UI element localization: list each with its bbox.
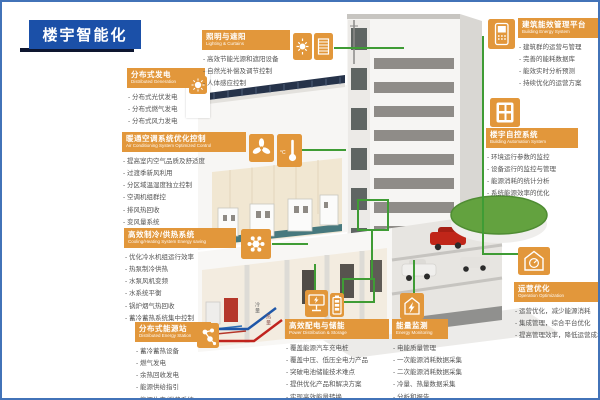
section-cooling-heating: 高效制冷/供热系统 Cooling/Heating System Energy …	[124, 228, 236, 325]
section-header: 运营优化 Operation Optimization	[514, 282, 600, 302]
section-header: 暖通空调系统优化控制 Air Conditioning System Optim…	[122, 132, 246, 152]
section-items: 电能质量管理 一次能源消耗数据采集 二次能源消耗数据采集 冷量、热量数据采集 分…	[393, 343, 448, 400]
section-title: 高效制冷/供热系统	[128, 230, 232, 239]
list-item: 二次能源消耗数据采集	[393, 367, 448, 379]
list-item: 一次能源消耗数据采集	[393, 355, 448, 367]
page-title: 楼宇智能化	[29, 20, 141, 49]
section-title: 高效配电与储能	[289, 321, 385, 330]
battery-icon	[330, 293, 344, 317]
list-item: 提高室内空气品质及舒适度	[123, 156, 246, 168]
hot-pipe-label: 热量	[265, 314, 270, 326]
list-item: 运营优化，减少能源消耗	[515, 306, 600, 318]
section-title: 运营优化	[518, 284, 596, 293]
list-item: 锅炉烟气热回收	[125, 301, 236, 313]
list-item: 能源消耗的统计分析	[487, 176, 578, 188]
list-item: 提高管理效率，降低运营成本	[515, 330, 600, 342]
section-items: 分布式光伏发电 分布式燃气发电 分布式风力发电	[128, 92, 205, 129]
section-items: 环境运行参数的监控 设备运行的监控与管理 能源消耗的统计分析 系统能源效率的优化	[487, 152, 578, 201]
section-header: 高效制冷/供热系统 Cooling/Heating System Energy …	[124, 228, 236, 248]
section-subtitle: Operation Optimization	[518, 293, 596, 299]
list-item: 高效节能光源和遮阳设备	[203, 54, 290, 66]
list-item: 提供优化产品和解决方案	[286, 379, 389, 391]
list-item: 覆盖能源汽车充电桩	[286, 343, 389, 355]
list-item: 能源生产/消费系统	[136, 395, 211, 400]
section-subtitle: Building Automation System	[490, 139, 574, 145]
list-item: 过渡季新风利用	[123, 168, 246, 180]
list-item: 自然光补偿及调节控制	[203, 66, 290, 78]
slide-canvas: 冷量 热量 楼宇智能化 分布式发电 Distributed Generation…	[0, 0, 600, 400]
section-items: 提高室内空气品质及舒适度 过渡季新风利用 分区域温湿度独立控制 空调机组群控 排…	[123, 156, 246, 230]
list-item: 集成管理，综合平台优化	[515, 318, 600, 330]
section-subtitle: Cooling/Heating System Energy saving	[128, 239, 232, 245]
cold-pipe-label: 冷量	[254, 302, 259, 314]
list-item: 能源供给指引	[136, 382, 211, 394]
section-operation-optimization: 运营优化 Operation Optimization 运营优化，减少能源消耗 …	[514, 282, 600, 342]
sun-icon	[293, 33, 312, 60]
section-title: 能量监测	[396, 321, 444, 330]
tablet-icon	[488, 19, 515, 49]
list-item: 优化冷水机组运行效率	[125, 252, 236, 264]
section-subtitle: Power Distribution & Storage	[289, 330, 385, 336]
section-items: 建筑群的运营与管理 完善的能耗数据库 能效实时分析预测 持续优化的运营方案	[519, 42, 600, 91]
section-lighting: 照明与遮阳 Lighting & Curtains 高效节能光源和遮阳设备 自然…	[202, 30, 290, 90]
list-item: 完善的能耗数据库	[519, 54, 600, 66]
list-item: 水系统平衡	[125, 288, 236, 300]
list-item: 设备运行的监控与管理	[487, 164, 578, 176]
molecule-icon	[197, 323, 219, 348]
list-item: 分区域温湿度独立控制	[123, 180, 246, 192]
section-energy-monitoring: 能量监测 Energy Monitoring 电能质量管理 一次能源消耗数据采集…	[392, 319, 448, 400]
list-item: 余热回收发电	[136, 370, 211, 382]
list-item: 能效实时分析预测	[519, 66, 600, 78]
section-title: 楼宇自控系统	[490, 130, 574, 139]
list-item: 分布式燃气发电	[128, 104, 205, 116]
section-title: 照明与遮阳	[206, 32, 286, 41]
list-item: 系统能源效率的优化	[487, 188, 578, 200]
list-item: 突破电池储能技术难点	[286, 367, 389, 379]
section-subtitle: Lighting & Curtains	[206, 41, 286, 47]
list-item: 环境运行参数的监控	[487, 152, 578, 164]
list-item: 分布式风力发电	[128, 116, 205, 128]
section-title: 暖通空调系统优化控制	[126, 134, 242, 143]
section-title: 建筑能效管理平台	[522, 20, 596, 29]
list-item: 冷量、热量数据采集	[393, 379, 448, 391]
section-header: 楼宇自控系统 Building Automation System	[486, 128, 578, 148]
house-gauge-icon	[518, 247, 550, 275]
section-building-automation: 楼宇自控系统 Building Automation System 环境运行参数…	[486, 128, 578, 201]
svg-text:°C: °C	[280, 150, 286, 156]
section-subtitle: Air Conditioning System Optimized Contro…	[126, 143, 242, 149]
green-roof-garden	[451, 196, 547, 243]
list-item: 持续优化的运营方案	[519, 78, 600, 90]
list-item: 实现高效能量转换	[286, 392, 389, 400]
list-item: 水泵风机变频	[125, 276, 236, 288]
list-item: 电能质量管理	[393, 343, 448, 355]
list-item: 燃气发电	[136, 358, 211, 370]
section-hvac: 暖通空调系统优化控制 Air Conditioning System Optim…	[122, 132, 246, 229]
list-item: 分析和报告	[393, 392, 448, 400]
list-item: 空调机组群控	[123, 192, 246, 204]
section-header: 能量监测 Energy Monitoring	[392, 319, 448, 339]
section-items: 高效节能光源和遮阳设备 自然光补偿及调节控制 人体感应控制	[203, 54, 290, 91]
section-header: 照明与遮阳 Lighting & Curtains	[202, 30, 290, 50]
list-item: 排风热回收	[123, 205, 246, 217]
gear-icon	[241, 229, 271, 259]
section-items: 优化冷水机组运行效率 热泵制冷供热 水泵风机变频 水系统平衡 锅炉烟气热回收 蓄…	[125, 252, 236, 326]
list-item: 建筑群的运营与管理	[519, 42, 600, 54]
section-items: 运营优化，减少能源消耗 集成管理，综合平台优化 提高管理效率，降低运营成本	[515, 306, 600, 343]
section-power-storage: 高效配电与储能 Power Distribution & Storage 覆盖能…	[285, 319, 389, 400]
section-items: 覆盖能源汽车充电桩 覆盖中压、低压全电力产品 突破电池储能技术难点 提供优化产品…	[286, 343, 389, 400]
section-energy-platform: 建筑能效管理平台 Building Energy System 建筑群的运营与管…	[518, 18, 600, 91]
list-item: 人体感应控制	[203, 78, 290, 90]
ev-charger-icon	[305, 290, 328, 317]
section-subtitle: Energy Monitoring	[396, 330, 444, 336]
thermometer-icon: °C	[277, 134, 302, 167]
section-items: 蓄冷蓄热设备 燃气发电 余热回收发电 能源供给指引 能源生产/消费系统	[136, 346, 211, 400]
section-header: 建筑能效管理平台 Building Energy System	[518, 18, 600, 38]
list-item: 覆盖中压、低压全电力产品	[286, 355, 389, 367]
fan-icon	[249, 134, 274, 162]
building-bolt-icon	[400, 293, 424, 319]
blinds-icon	[314, 33, 333, 60]
section-subtitle: Building Energy System	[522, 29, 596, 35]
window-panel-icon	[490, 98, 520, 127]
list-item: 热泵制冷供热	[125, 264, 236, 276]
section-header: 高效配电与储能 Power Distribution & Storage	[285, 319, 389, 339]
